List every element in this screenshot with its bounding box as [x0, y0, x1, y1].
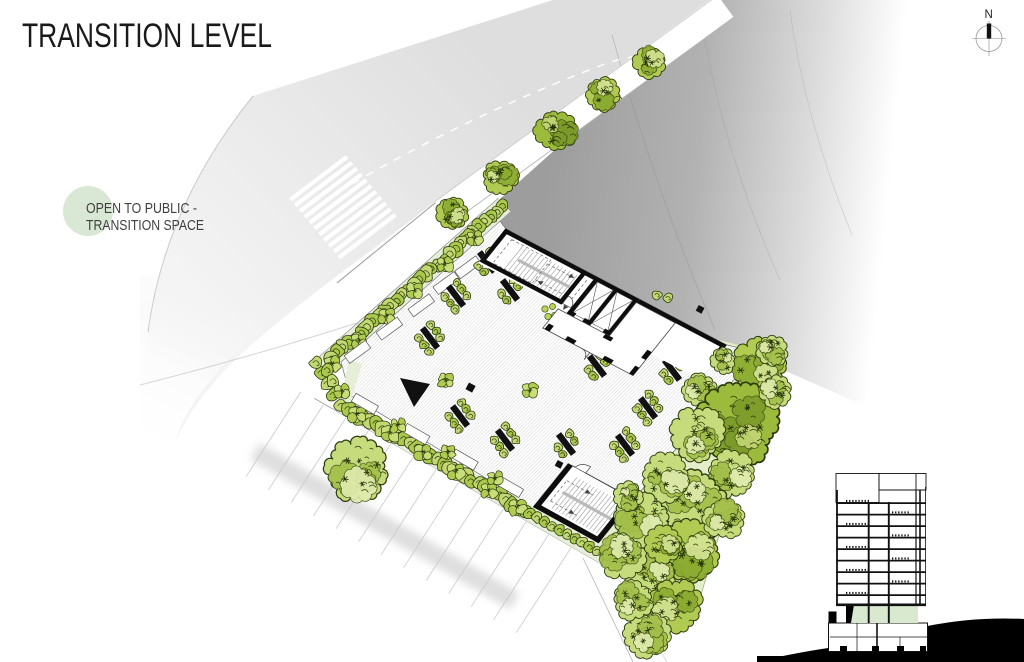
- svg-text:TRANSITION SPACE: TRANSITION SPACE: [86, 218, 204, 234]
- svg-text:OPEN TO PUBLIC -: OPEN TO PUBLIC -: [86, 201, 197, 217]
- svg-text:TRANSITION LEVEL: TRANSITION LEVEL: [22, 17, 272, 55]
- svg-text:N: N: [985, 9, 993, 21]
